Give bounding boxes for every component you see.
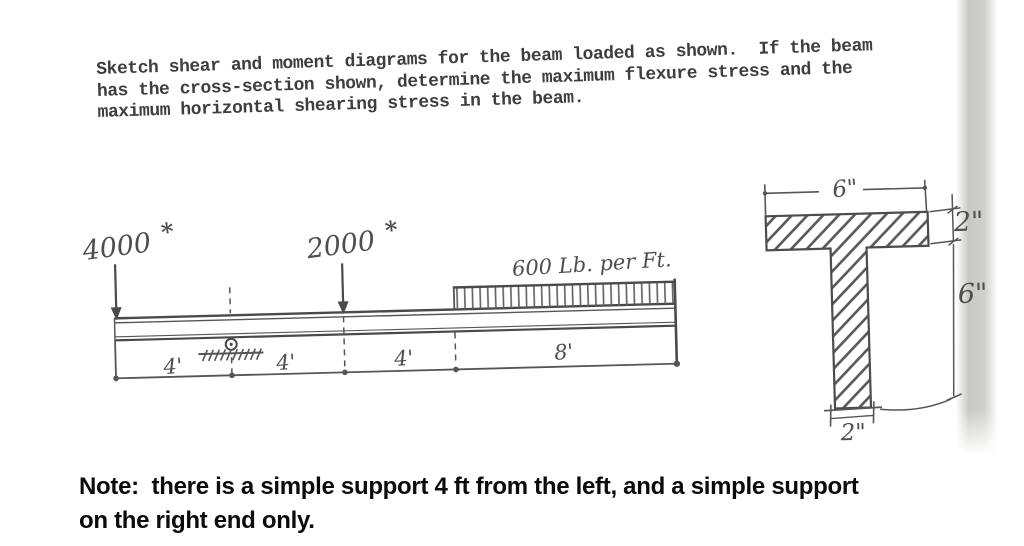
span-label-4: 8' [553,339,574,364]
flange-thickness-dimension: 2" [929,193,984,245]
span-label-1: 4' [161,354,183,380]
load-2-pound-symbol: * [383,214,400,244]
span-label-3: 4' [392,346,414,372]
cross-section-figure: 6" 2" 6" 2" [762,171,991,448]
load-1-value: 4000 [80,227,153,267]
load-2-arrow [337,263,349,314]
distributed-load-label: 600 Lb. per Ft. [511,247,672,281]
span-label-2: 4' [274,350,296,376]
flange-width-label: 6" [831,175,859,203]
web-height-label: 6" [957,278,987,310]
web-width-label: 2" [839,420,866,447]
load-1-arrow [110,264,122,320]
note-line-2: on the right end only. [79,504,1009,538]
flange-thickness-label: 2" [952,206,983,238]
note-line-1: Note: there is a simple support 4 ft fro… [79,470,1009,504]
note-text: Note: there is a simple support 4 ft fro… [79,470,1009,537]
beam-right-end-line [675,279,677,365]
flange-width-dimension: 6" [762,173,927,215]
load-2-label: 2000 * [303,214,402,265]
beam-body [114,304,675,341]
t-section-shape [766,212,933,410]
load-2-value: 2000 [304,226,377,266]
load-1-label: 4000 * [79,216,178,267]
load-1-pound-symbol: * [159,216,176,246]
beam-diagram: 4000 * 2000 * 600 Lb. per Ft. [79,203,681,382]
web-height-dimension: 6" [876,243,991,410]
diagram-canvas: 4000 * 2000 * 600 Lb. per Ft. [0,0,1024,546]
